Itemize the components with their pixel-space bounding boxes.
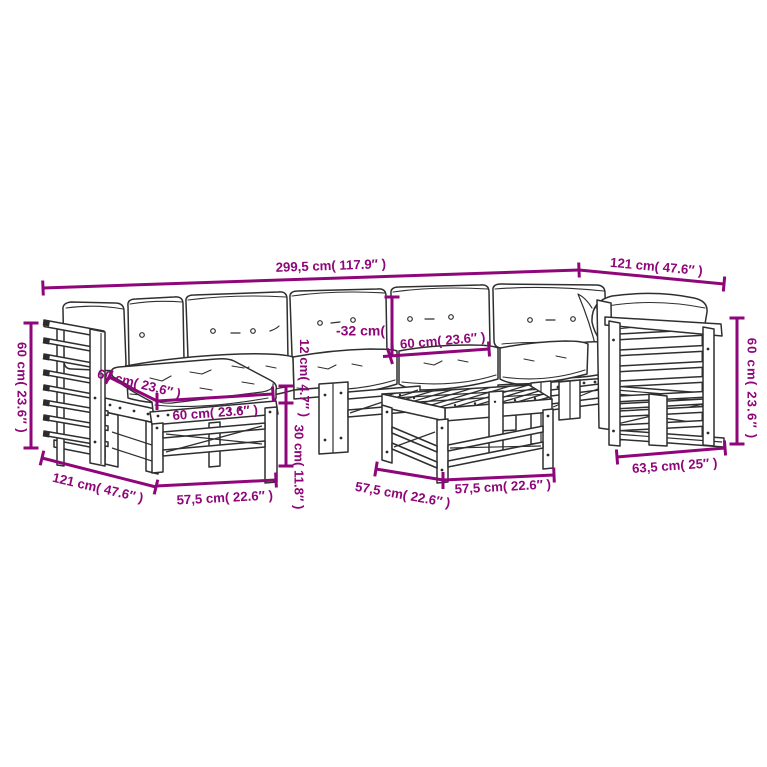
svg-text:30 cm( 11.8″ ): 30 cm( 11.8″ )	[292, 425, 307, 510]
svg-text:60 cm( 23.6″ ): 60 cm( 23.6″ )	[745, 338, 760, 440]
svg-text:60 cm( 23.6″ ): 60 cm( 23.6″ )	[15, 342, 30, 433]
svg-text:-32 cm(: -32 cm(	[336, 323, 385, 339]
svg-text:12 cm( 4.7″ ): 12 cm( 4.7″ )	[297, 339, 312, 417]
